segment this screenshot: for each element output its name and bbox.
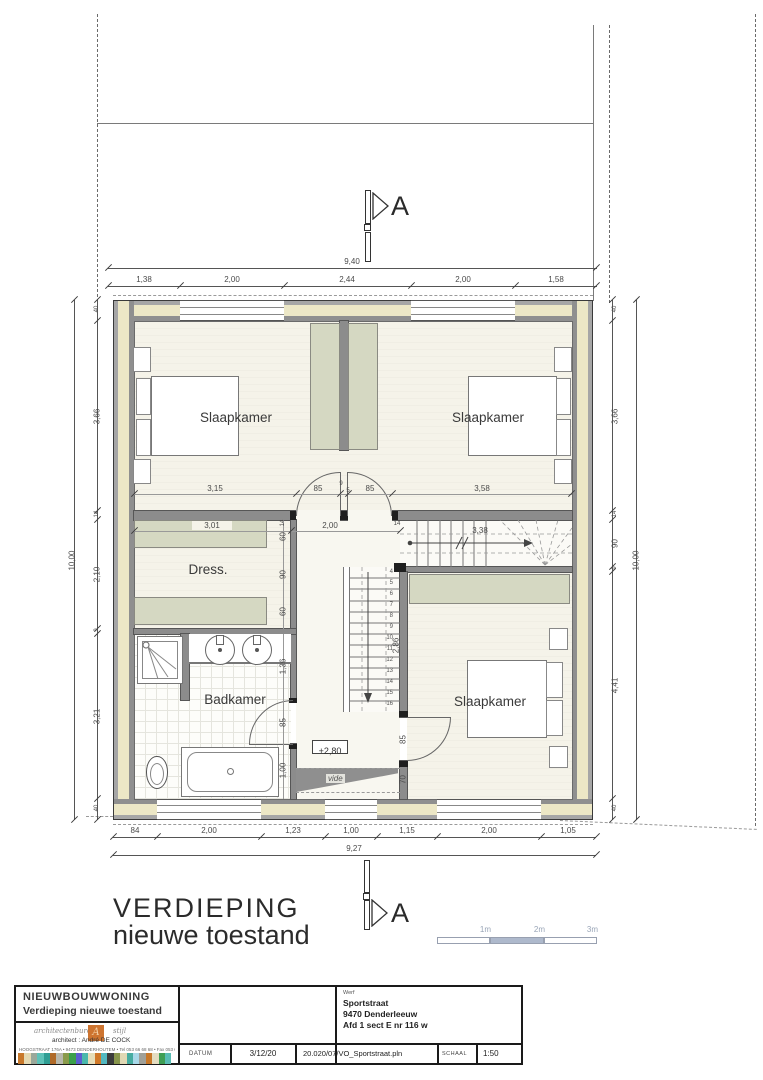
werf-city: 9470 Denderleeuw (343, 1009, 417, 1019)
dim-label: 3,15 (195, 484, 235, 493)
level-label: +2,80 (319, 746, 342, 756)
dim-label: 1,15 (387, 826, 427, 835)
wall-bedroom3-left-upper (400, 572, 407, 717)
stair-number: 8 (381, 613, 393, 619)
dim-label: 85 (303, 484, 333, 493)
wall-hall-left-upper (291, 520, 296, 700)
room-label-bedroom2: Slaapkamer (452, 410, 524, 425)
exterior-wall-left (113, 300, 134, 820)
dim-label: 85 (355, 484, 385, 493)
dim-label: 14 (390, 521, 404, 527)
pillow (136, 419, 151, 456)
stair-number: 16 (381, 701, 393, 707)
dim-label: 3,01 (192, 521, 232, 530)
drawing-title-line2: nieuwe toestand (113, 920, 310, 951)
pillow (136, 378, 151, 415)
dim-label: 3,66 (93, 402, 102, 432)
dim-line (108, 286, 597, 287)
dim-label: 40 (612, 294, 618, 324)
dim-label: 3,38 (460, 526, 500, 535)
dim-label: 5 (343, 488, 353, 494)
dim-label: 9 (612, 553, 618, 583)
dim-label: 1,05 (548, 826, 588, 835)
vide-edge (296, 792, 400, 793)
stair-number: 4 (381, 569, 393, 575)
dim-label: 90 (279, 560, 288, 590)
closet-dressing-bottom (134, 597, 267, 625)
logo-color-strip (18, 1053, 176, 1064)
dim-label: 1,36 (279, 652, 288, 682)
stair-number: 14 (381, 679, 393, 685)
dim-label: 60 (279, 522, 288, 552)
window-top-left (180, 300, 284, 321)
dim-label: 10,00 (68, 546, 77, 576)
wall-stair-bottom (400, 567, 572, 572)
scale-label: 1m (469, 925, 491, 934)
wall-bedroom-partition (340, 321, 348, 450)
property-line-far-right (755, 14, 756, 826)
schaal-value: 1:50 (483, 1049, 499, 1058)
dim-label: 3,21 (93, 702, 102, 732)
dim-label: 10,00 (632, 546, 641, 576)
dim-label: 70 (399, 765, 408, 795)
section-line-bar (364, 900, 370, 930)
dim-line (108, 268, 597, 269)
dim-label: 1,23 (273, 826, 313, 835)
dim-label: 1,00 (279, 756, 288, 786)
scale-label: 3m (576, 925, 598, 934)
dim-label: 9 (94, 615, 100, 645)
nightstand (133, 347, 151, 372)
werf-street: Sportstraat (343, 998, 388, 1008)
dim-label: 84 (115, 826, 155, 835)
werf-label: Werf (343, 990, 355, 996)
room-label-bedroom3: Slaapkamer (454, 694, 526, 709)
door-jamb (392, 511, 398, 520)
dim-label: 40 (612, 793, 618, 823)
dim-label: 2,86 (392, 631, 401, 661)
stair-number: 6 (381, 591, 393, 597)
bureau-address: HOOGSTRAAT 176A • 9473 DENDERHOUTEM • Te… (19, 1047, 175, 1052)
dim-line (134, 494, 572, 495)
exterior-wall-right (572, 300, 593, 820)
dim-line (134, 531, 400, 532)
title-block-divider (16, 1021, 178, 1023)
section-line-bar (364, 860, 370, 893)
shower-head-icon (140, 639, 184, 683)
dim-label: 9,40 (332, 257, 372, 266)
nightstand (549, 746, 568, 768)
stair-number: 13 (381, 668, 393, 674)
nightstand (133, 459, 151, 484)
title-block-divider (178, 987, 180, 1063)
dim-label: 2,44 (327, 275, 367, 284)
section-label: A (391, 898, 409, 929)
architect-name: architect : André DE COCK (52, 1037, 130, 1044)
dim-label: 3,66 (611, 402, 620, 432)
neighbour-line-right (593, 25, 594, 301)
closet-bedroom2 (348, 323, 378, 450)
title-block-divider (476, 1043, 478, 1063)
dim-label: 1,58 (536, 275, 576, 284)
sink (242, 635, 272, 665)
neighbour-line-top (97, 123, 593, 124)
section-line-dot (364, 224, 371, 231)
room-label-bathroom: Badkamer (204, 692, 266, 707)
window-top-right (411, 300, 515, 321)
pillow (556, 378, 571, 415)
section-line-dot (363, 893, 370, 900)
section-label: A (391, 191, 409, 222)
vide-label: vide (326, 774, 345, 783)
scale-segment (437, 937, 490, 944)
dim-label: 2,00 (469, 826, 509, 835)
stair-number: 15 (381, 690, 393, 696)
window-bottom-hall (325, 799, 377, 820)
title-block-divider (437, 1043, 439, 1063)
closet-bedroom3 (409, 574, 570, 604)
eaves-line-top (113, 295, 593, 296)
dim-line (113, 855, 596, 856)
stair-number: 5 (381, 580, 393, 586)
dim-label: 2,00 (443, 275, 483, 284)
vide-edge (296, 768, 400, 769)
werf-cadastre: Afd 1 sect E nr 116 w (343, 1020, 428, 1030)
room-label-bedroom1: Slaapkamer (200, 410, 272, 425)
window-bottom-bathroom (157, 799, 261, 820)
title-block: NIEUWBOUWWONING Verdieping nieuwe toesta… (14, 985, 523, 1065)
color-swatch (165, 1053, 171, 1064)
sink (205, 635, 235, 665)
dim-label: 9,27 (334, 844, 374, 853)
nightstand (549, 628, 568, 650)
title-block-divider (295, 1043, 297, 1063)
door-leaf (249, 744, 293, 745)
dim-label: 85 (279, 708, 288, 738)
toilet-bowl (150, 763, 164, 785)
dim-label: 4,41 (611, 671, 620, 701)
dim-label: 2,00 (310, 521, 350, 530)
section-arrow-icon (371, 899, 388, 927)
floor-plan-sheet: A 9,40 1,38 2,00 2,44 2,00 1,58 (0, 0, 763, 1080)
window-bottom-bedroom3 (437, 799, 541, 820)
pillow (546, 662, 563, 698)
closet-bedroom1 (310, 323, 340, 450)
scale-label: 2m (523, 925, 545, 934)
dim-label: 2,00 (212, 275, 252, 284)
file-reference: 20.020/07/VO_Sportstraat.pln (303, 1049, 402, 1058)
dim-line (113, 837, 596, 838)
project-title: NIEUWBOUWWONING (23, 991, 150, 1003)
dim-label: 1,38 (124, 275, 164, 284)
pillow (546, 700, 563, 736)
dim-label: 2,00 (189, 826, 229, 835)
wall-hall-left-lower (291, 744, 296, 799)
dim-label: 14 (94, 499, 100, 529)
nightstand (554, 459, 572, 484)
door-leaf (407, 717, 451, 718)
eaves-line-bottom (113, 824, 593, 825)
level-marker: +2,80 (312, 740, 348, 754)
dim-label: 40 (94, 793, 100, 823)
stair-number: 7 (381, 602, 393, 608)
pillow (556, 419, 571, 456)
scale-segment (544, 937, 597, 944)
schaal-label: SCHAAL (442, 1051, 467, 1057)
nightstand (554, 347, 572, 372)
dim-label: 60 (279, 597, 288, 627)
dim-label: 9 (336, 481, 346, 487)
bureau-script2: stijl (113, 1027, 126, 1035)
section-arrow-icon (372, 192, 389, 220)
section-line-bar (365, 190, 371, 224)
property-line-left (97, 14, 98, 302)
datum-label: DATUM (189, 1051, 212, 1057)
dim-label: 14 (612, 499, 618, 529)
datum-value: 3/12/20 (232, 1049, 294, 1058)
dim-label: 40 (94, 294, 100, 324)
dim-label: 3,58 (462, 484, 502, 493)
scale-segment (490, 937, 544, 944)
room-label-dressing: Dress. (188, 562, 227, 577)
dim-label: 85 (399, 725, 408, 755)
stair-number: 9 (381, 624, 393, 630)
property-line-right-inner (609, 25, 610, 303)
project-subtitle: Verdieping nieuwe toestand (23, 1005, 162, 1017)
bathtub-drain (227, 768, 234, 775)
dim-label: 1,00 (331, 826, 371, 835)
dim-label: 2,10 (93, 560, 102, 590)
